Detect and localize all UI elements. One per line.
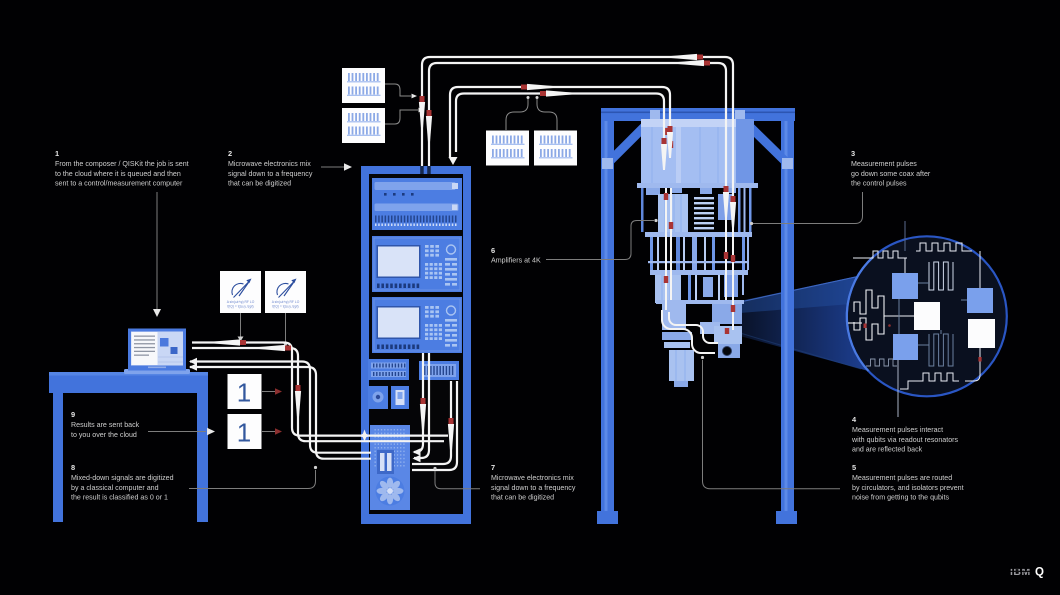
svg-text:the result is classified as 0: the result is classified as 0 or 1 — [71, 494, 168, 502]
svg-text:to the cloud where it is queue: to the cloud where it is queued and then — [55, 170, 181, 178]
svg-text:Microwave electronics mix: Microwave electronics mix — [491, 474, 574, 482]
svg-text:that can be digitized: that can be digitized — [228, 180, 291, 188]
svg-text:1: 1 — [55, 149, 59, 158]
svg-text:1: 1 — [237, 378, 251, 408]
svg-text:Mixed-down signals are digitiz: Mixed-down signals are digitized — [71, 474, 174, 482]
svg-text:Microwave electronics mix: Microwave electronics mix — [228, 160, 311, 168]
svg-text:6: 6 — [491, 246, 495, 255]
svg-text:8: 8 — [71, 463, 75, 472]
svg-text:9: 9 — [71, 410, 75, 419]
svg-text:by circulators, and isolators: by circulators, and isolators prevent — [852, 484, 964, 492]
svg-text:A sin(ωt+φ) RF LO: A sin(ωt+φ) RF LO — [227, 300, 255, 304]
svg-text:A sin(ωt+φ) RF LO: A sin(ωt+φ) RF LO — [272, 300, 300, 304]
svg-text:3: 3 — [851, 149, 855, 158]
svg-text:5: 5 — [852, 463, 856, 472]
svg-text:and are reflected back: and are reflected back — [852, 446, 923, 454]
svg-text:Measurement pulses interact: Measurement pulses interact — [852, 426, 943, 434]
svg-text:Amplifiers at 4K: Amplifiers at 4K — [491, 257, 541, 265]
svg-text:go down some coax after: go down some coax after — [851, 170, 931, 178]
svg-text:f(IQ) = t(Δω), t(φt): f(IQ) = t(Δω), t(φt) — [272, 305, 298, 309]
svg-text:Q: Q — [1035, 567, 1044, 579]
svg-text:Measurement pulses: Measurement pulses — [851, 160, 917, 168]
svg-text:2: 2 — [228, 149, 232, 158]
svg-text:to you over the cloud: to you over the cloud — [71, 431, 137, 439]
svg-text:Results are sent back: Results are sent back — [71, 421, 140, 429]
svg-text:signal down to a frequency: signal down to a frequency — [491, 484, 576, 492]
svg-text:with qubits via readout resona: with qubits via readout resonators — [851, 436, 959, 444]
svg-text:that can be digitized: that can be digitized — [491, 494, 554, 502]
svg-text:From the composer / QISKit the: From the composer / QISKit the job is se… — [55, 160, 189, 168]
svg-text:7: 7 — [491, 463, 495, 472]
svg-text:noise from getting to the qubi: noise from getting to the qubits — [852, 494, 949, 502]
svg-text:f(IQ) = t(Δω), t(φt): f(IQ) = t(Δω), t(φt) — [227, 305, 253, 309]
svg-text:by a classical computer and: by a classical computer and — [71, 484, 159, 492]
svg-text:signal down to a frequency: signal down to a frequency — [228, 170, 313, 178]
svg-text:1: 1 — [237, 418, 251, 448]
svg-text:Measurement pulses are routed: Measurement pulses are routed — [852, 474, 952, 482]
svg-text:the control pulses: the control pulses — [851, 180, 907, 188]
svg-text:sent to a control/measurement: sent to a control/measurement computer — [55, 180, 183, 188]
